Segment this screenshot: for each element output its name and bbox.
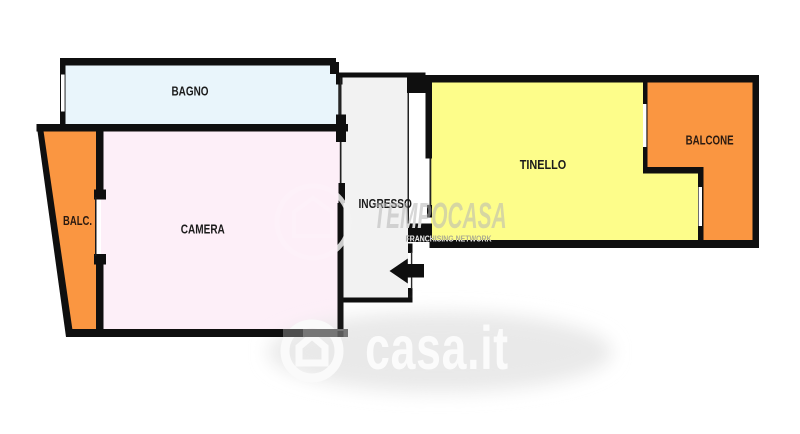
svg-text:TEMPOCASA: TEMPOCASA (373, 196, 506, 236)
svg-text:BALC.: BALC. (63, 214, 92, 228)
svg-text:CAMERA: CAMERA (181, 223, 225, 237)
svg-text:BALCONE: BALCONE (686, 134, 734, 148)
svg-text:casa.it: casa.it (365, 315, 509, 382)
svg-text:BAGNO: BAGNO (172, 85, 209, 99)
svg-text:TINELLO: TINELLO (520, 158, 567, 172)
